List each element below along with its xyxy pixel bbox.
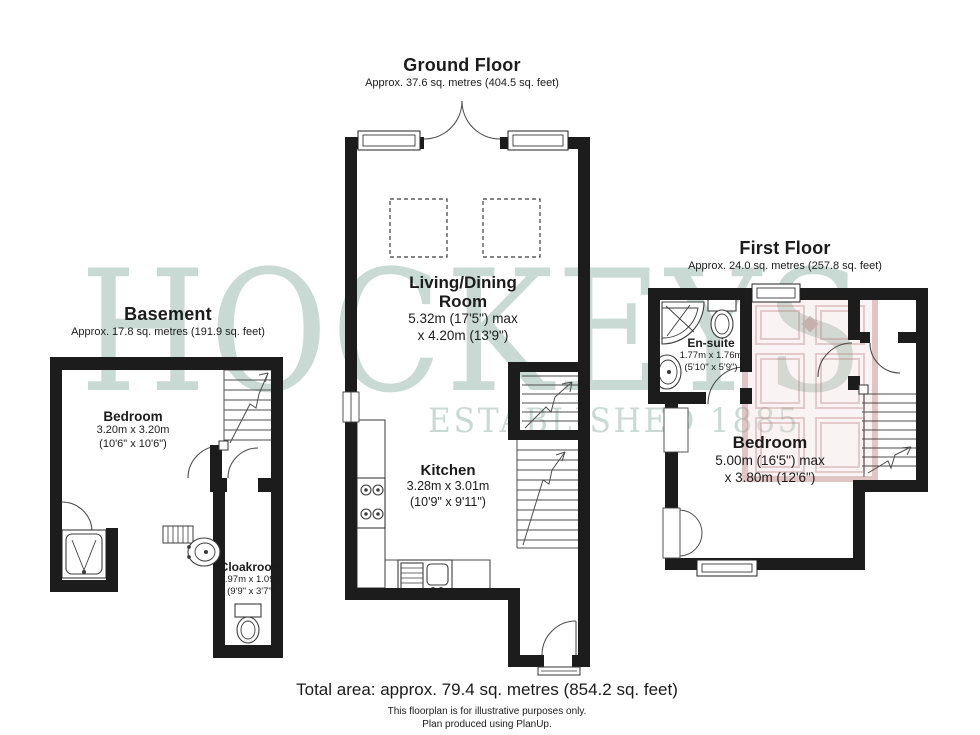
hob-icon: [357, 478, 385, 528]
window-icon: [697, 560, 757, 576]
disclaimer-text: This floorplan is for illustrative purpo…: [388, 706, 587, 718]
window-icon: [752, 284, 800, 302]
roof-light-icon: [390, 199, 540, 257]
first-floor-title: First Floor: [739, 238, 830, 259]
basement-plan: [50, 357, 283, 658]
radiator-icon: [163, 526, 193, 543]
ground-floor-plan: [343, 101, 590, 675]
basement-title: Basement: [124, 304, 212, 325]
window-recess: [664, 408, 688, 452]
basin-icon: [188, 538, 220, 566]
total-area-text: Total area: approx. 79.4 sq. metres (854…: [296, 680, 678, 700]
basement-area: Approx. 17.8 sq. metres (191.9 sq. feet): [71, 326, 265, 338]
stairs-icon: [862, 390, 916, 477]
kitchen-label: Kitchen 3.28m x 3.01m (10'9" x 9'11"): [407, 462, 490, 510]
cloakroom-label: Cloakroom 2.97m x 1.09m (9'9" x 3'7"): [220, 560, 283, 598]
shower-icon: [62, 530, 106, 578]
newel-post: [219, 441, 228, 450]
floorplan-page: HOCKEYS ESTABLISHED 1885: [0, 0, 980, 735]
newel-post: [859, 385, 868, 394]
casement-window-icon: [663, 508, 702, 558]
ground-floor-title: Ground Floor: [403, 55, 520, 76]
stairs-icon: [522, 376, 578, 428]
door-arc-icon: [542, 621, 576, 655]
first-bedroom-label: Bedroom 5.00m (16'5") max x 3.80m (12'6"…: [715, 434, 824, 486]
ground-floor-area: Approx. 37.6 sq. metres (404.5 sq. feet): [365, 77, 559, 89]
first-floor-plan: [648, 284, 928, 576]
floorplan-drawing: [0, 0, 980, 735]
french-door-arc-icon: [424, 101, 500, 139]
stairs-icon: [224, 363, 271, 448]
credit-text: Plan produced using PlanUp.: [422, 719, 552, 731]
threshold: [538, 667, 580, 675]
stairs-icon: [517, 440, 578, 548]
first-floor-area: Approx. 24.0 sq. metres (257.8 sq. feet): [688, 260, 882, 272]
living-dining-room-label: Living/Dining Room 5.32m (17'5") max x 4…: [397, 274, 529, 345]
door-arc-icon: [62, 446, 258, 532]
sink-icon: [398, 560, 452, 592]
toilet-icon: [708, 298, 736, 338]
basement-bedroom-label: Bedroom 3.20m x 3.20m (10'6" x 10'6"): [97, 409, 170, 452]
toilet-icon: [235, 604, 261, 643]
window-icon: [343, 392, 359, 422]
ensuite-label: En-suite 1.77m x 1.76m (5'10" x 5'9"): [680, 336, 743, 374]
